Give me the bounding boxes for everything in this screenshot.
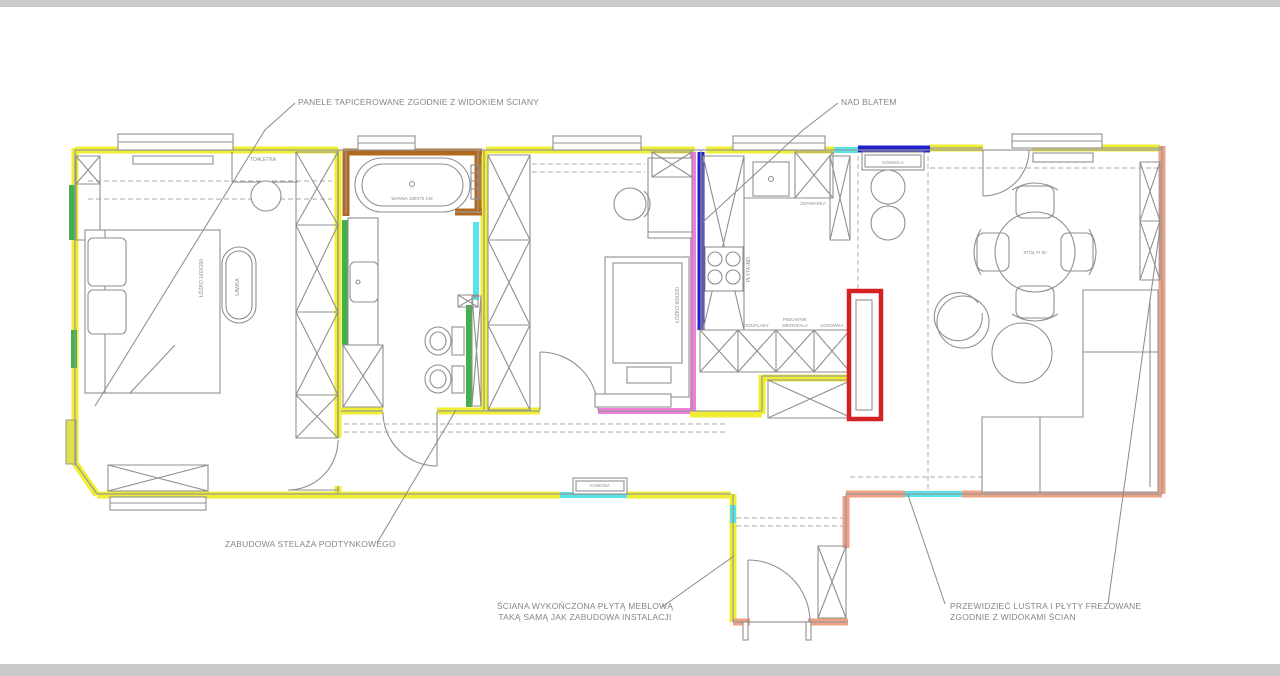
tall-unit-red (849, 291, 881, 419)
corner-sofa (982, 290, 1158, 492)
radiator (133, 156, 213, 164)
bench-label: ŁAWKA (235, 278, 241, 296)
table-label: STÓŁ FI 90 (1023, 249, 1047, 255)
window (358, 136, 415, 150)
washbasin (348, 218, 378, 345)
desk (648, 152, 692, 238)
dressing-stool (251, 181, 281, 211)
leader-line (377, 410, 456, 543)
bedroom-1: TOALETKA ŁÓŻKO 160X200 ŁAWKA (76, 152, 338, 491)
annotation-lustra-2: ZGODNIE Z WIDOKAMI ŚCIAN (950, 611, 1076, 622)
base-cabinets (700, 330, 850, 372)
dining-chair (1061, 229, 1096, 275)
window-bench (108, 465, 208, 491)
armchair (934, 293, 989, 348)
komoda-label: KOMODA (590, 483, 610, 488)
door-entry (748, 560, 810, 622)
tall-cabinet-column (703, 156, 744, 330)
annotation-nad-blatem: NAD BLATEM (841, 97, 897, 107)
wardrobe-unit (296, 152, 338, 438)
wardrobe-unit (488, 155, 530, 410)
radiator (1033, 153, 1093, 162)
window (733, 136, 825, 150)
microwave-label: MIKROFALA (782, 323, 808, 328)
wardrobe-unit (1140, 162, 1160, 280)
annotation-sciana-1: ŚCIANA WYKOŃCZONA PŁYTĄ MEBLOWĄ (497, 600, 673, 611)
annotation-sciana-2: TAKĄ SAMĄ JAK ZABUDOWA INSTALACJI (498, 612, 671, 622)
dining-chair (974, 229, 1009, 275)
annotation-panele: PANELE TAPICEROWANE ZGODNIE Z WIDOKIEM Ś… (298, 96, 539, 107)
dishwasher-label: ZMYWARKA (800, 201, 826, 206)
hob-label: PŁYTA IND. (746, 256, 752, 283)
desk-chair (614, 188, 650, 220)
annotation-lustra-1: PRZEWIDZIEĆ LUSTRA I PŁYTY FREZOWANE (950, 601, 1142, 611)
bathroom: WANNA 180X75 CM (343, 158, 481, 407)
bed-bench (595, 394, 671, 407)
door-bathroom (383, 412, 437, 466)
washer-cabinet (343, 345, 383, 407)
toilet (425, 327, 464, 355)
bar-stool (871, 170, 905, 204)
drawers-label: SZUFLADY (745, 323, 769, 328)
window (1012, 134, 1102, 148)
bed1-label: ŁÓŻKO 160X200 (198, 259, 205, 298)
dining-chair (1012, 183, 1058, 218)
corner-cabinet (76, 156, 100, 240)
oven-label: PIEKARNIK (783, 317, 807, 322)
sink (753, 162, 789, 196)
entry-threshold (806, 622, 811, 640)
bidet (425, 365, 464, 393)
window (553, 136, 641, 150)
dressing-table-label: TOALETKA (250, 157, 277, 163)
bedroom-2: ŁÓŻKO 90X200 (488, 152, 692, 410)
door-bedroom-1 (288, 440, 338, 490)
door-bedroom-2 (540, 352, 598, 410)
double-bed (85, 230, 220, 393)
single-bed (605, 257, 689, 397)
entry-threshold (743, 622, 748, 640)
leader-line (662, 556, 734, 607)
coffee-table (992, 323, 1052, 383)
dining-set: STÓŁ FI 90 (974, 183, 1096, 321)
annotation-zabudowa: ZABUDOWA STELAŻA PODTYNKOWEGO (225, 539, 396, 549)
entry-wardrobe (818, 546, 846, 618)
bar-stool (871, 206, 905, 240)
bed-pillow (88, 290, 126, 334)
komoda-dresser: KOMODA (573, 478, 627, 494)
living-room: STÓŁ FI 90 (934, 153, 1160, 492)
bed-pillow (88, 238, 126, 286)
floor-plan-drawing: TOALETKA ŁÓŻKO 160X200 ŁAWKA (0, 0, 1280, 676)
fridge-label: LODÓWKA (820, 322, 843, 328)
bathtub (355, 158, 470, 212)
bathtub-label: WANNA 180X75 CM (391, 196, 433, 201)
floor-plan-page: TOALETKA ŁÓŻKO 160X200 ŁAWKA (0, 0, 1280, 676)
hob (705, 247, 743, 291)
bed2-label: ŁÓŻKO 90X200 (674, 287, 681, 323)
window (110, 497, 206, 510)
dining-chair (1012, 286, 1058, 321)
console-label: KONSOLA (882, 160, 904, 165)
window (118, 134, 233, 150)
hall-closet (768, 380, 852, 418)
